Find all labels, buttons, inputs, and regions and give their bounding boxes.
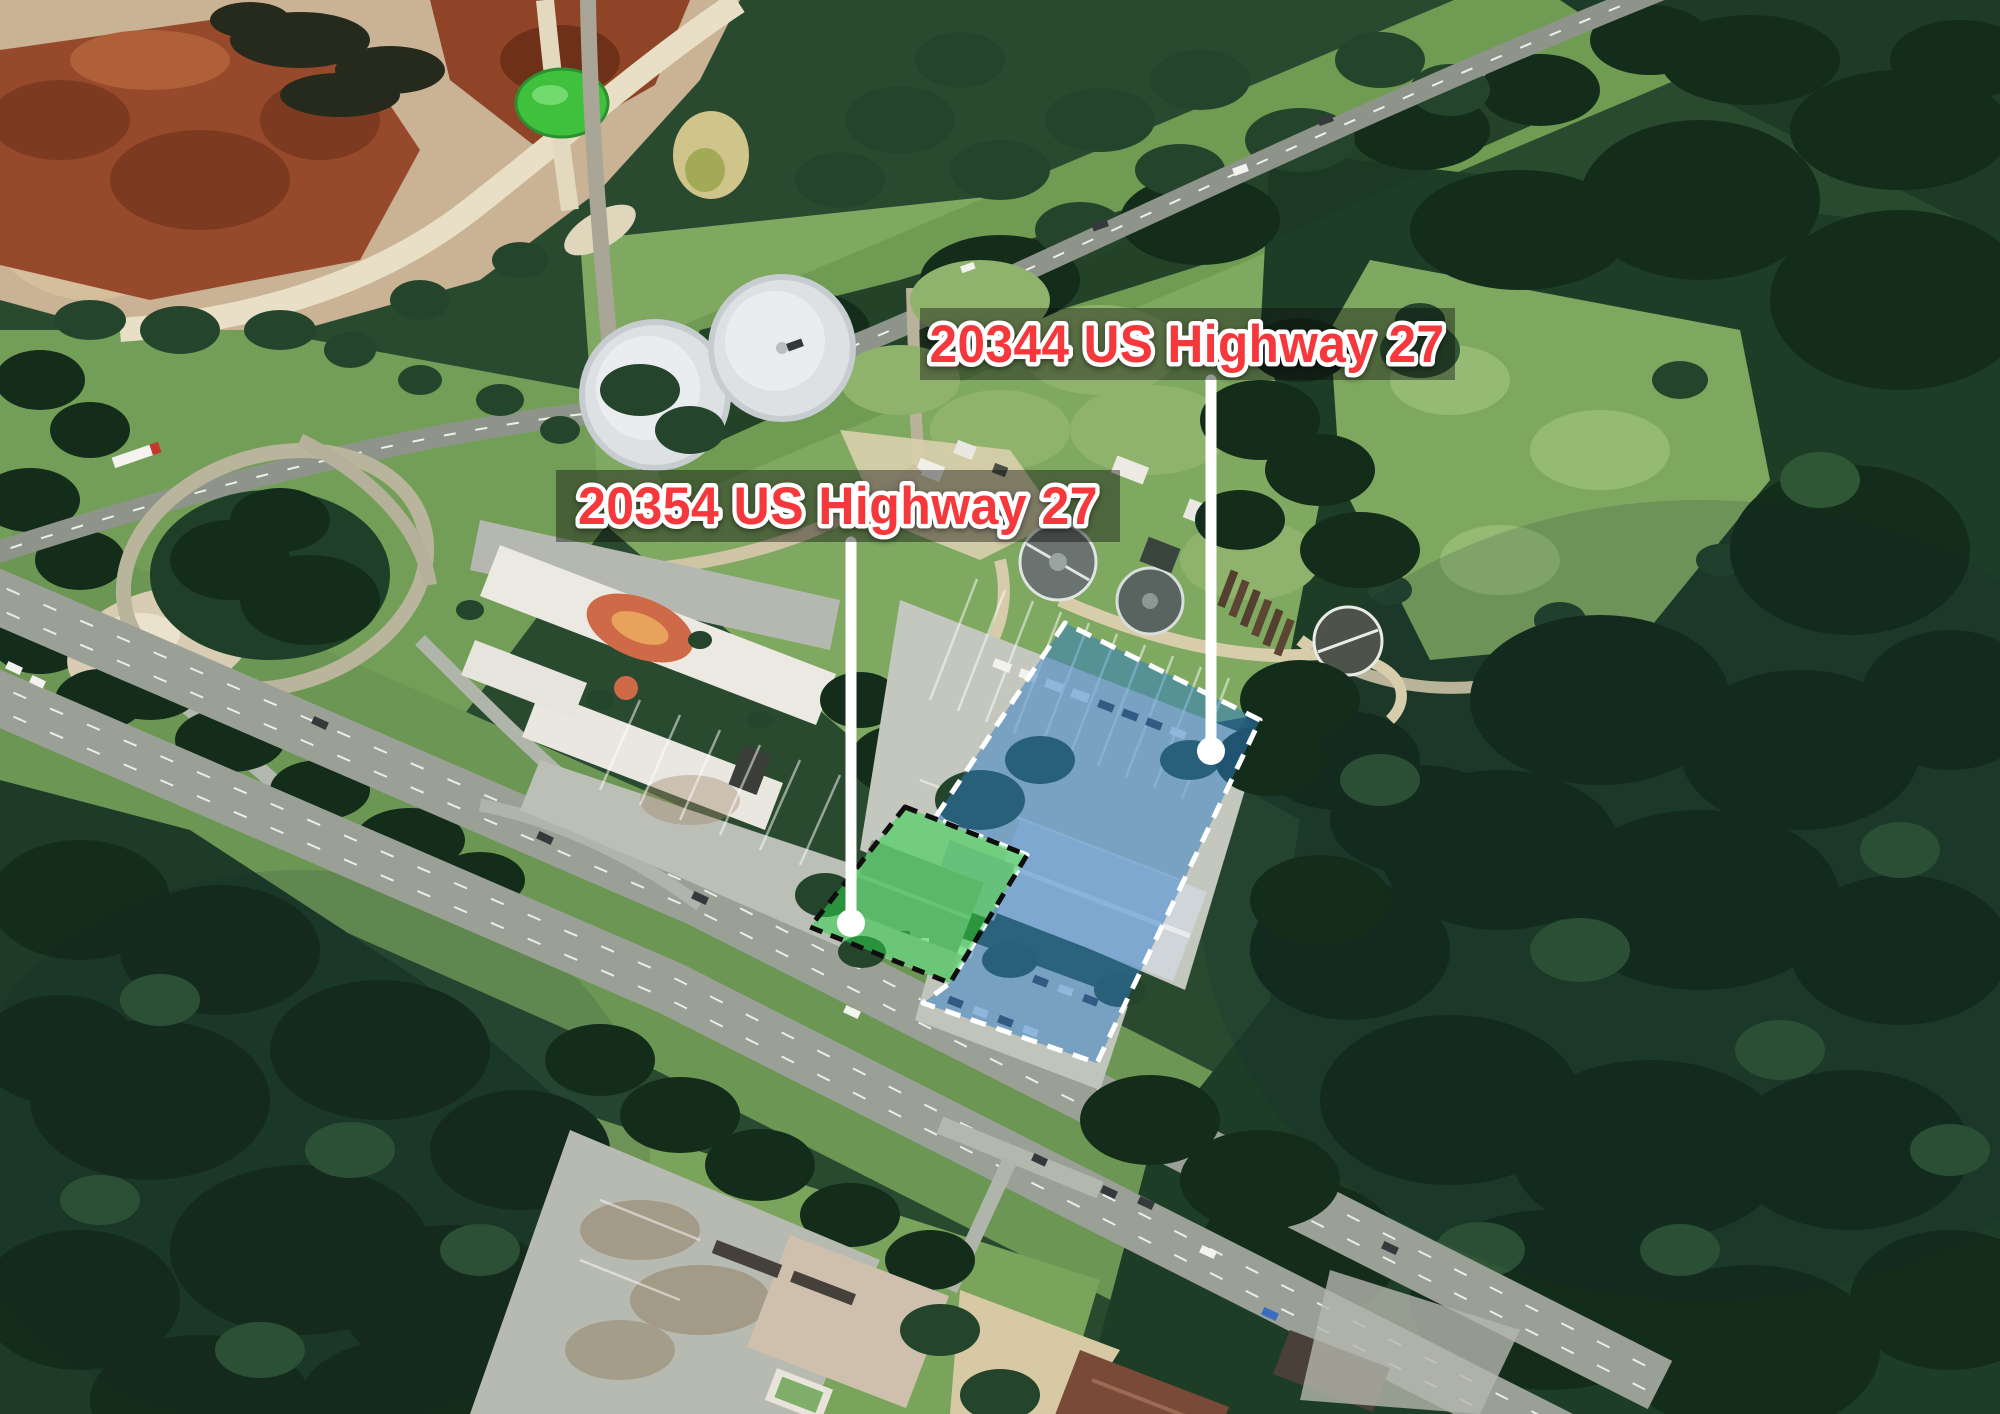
satellite-map: 20344 US Highway 27 20354 US Highway 27 [0,0,2000,1414]
address-label-20344[interactable]: 20344 US Highway 27 [920,308,1455,380]
address-label-20354[interactable]: 20354 US Highway 27 [556,470,1120,542]
label-text-20344: 20344 US Highway 27 [930,315,1445,374]
label-text-20354: 20354 US Highway 27 [578,477,1098,536]
location-dot-20354[interactable] [837,909,865,937]
location-dot-20344[interactable] [1197,737,1225,765]
water-tank-east [708,274,856,422]
